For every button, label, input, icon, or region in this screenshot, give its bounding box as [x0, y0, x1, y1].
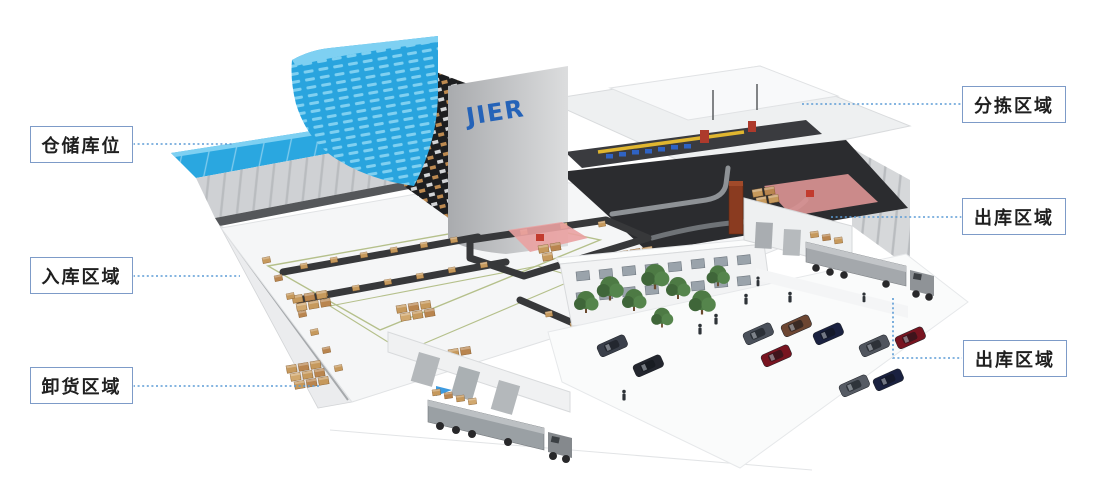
warehouse-zones-diagram: JIER — [0, 0, 1107, 497]
label-inbound-area: 入库区域 — [30, 257, 133, 294]
label-sorting-area: 分拣区域 — [962, 86, 1066, 123]
warehouse-illustration: JIER — [0, 0, 1107, 497]
label-outbound-area-lower: 出库区域 — [963, 340, 1067, 377]
label-unloading-area: 卸货区域 — [30, 367, 133, 404]
label-outbound-area-upper: 出库区域 — [962, 198, 1066, 235]
rust-column — [729, 181, 743, 234]
label-storage-bins: 仓储库位 — [30, 126, 133, 163]
